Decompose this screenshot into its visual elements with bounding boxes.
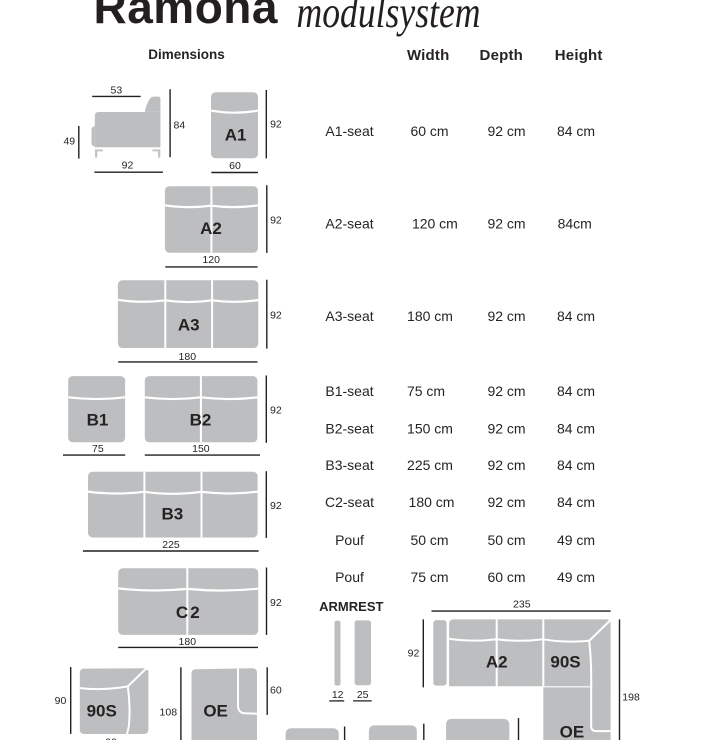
svg-text:120 cm: 120 cm — [412, 216, 458, 232]
svg-text:92 cm: 92 cm — [487, 421, 525, 437]
svg-text:49: 49 — [63, 136, 75, 148]
svg-text:50 cm: 50 cm — [410, 532, 448, 548]
svg-text:50 cm: 50 cm — [487, 532, 525, 548]
svg-text:B3: B3 — [162, 504, 184, 523]
svg-text:180: 180 — [179, 636, 197, 648]
svg-text:49 cm: 49 cm — [557, 569, 595, 585]
svg-text:150: 150 — [192, 443, 210, 455]
svg-text:84 cm: 84 cm — [557, 457, 595, 473]
svg-text:modulsystem: modulsystem — [297, 0, 481, 37]
svg-text:92: 92 — [122, 160, 134, 172]
svg-text:C2-seat: C2-seat — [325, 494, 374, 510]
svg-text:49 cm: 49 cm — [557, 532, 595, 548]
svg-text:180 cm: 180 cm — [409, 494, 455, 510]
svg-text:225 cm: 225 cm — [407, 457, 453, 473]
svg-text:108: 108 — [160, 707, 178, 719]
svg-text:75 cm: 75 cm — [407, 383, 445, 399]
svg-text:84cm: 84cm — [558, 216, 592, 232]
svg-text:60: 60 — [270, 685, 282, 697]
svg-text:90S: 90S — [550, 653, 580, 672]
svg-text:92 cm: 92 cm — [487, 308, 525, 324]
svg-text:B3-seat: B3-seat — [325, 457, 373, 473]
svg-text:92 cm: 92 cm — [487, 457, 525, 473]
svg-text:92: 92 — [270, 119, 282, 131]
svg-text:92: 92 — [270, 214, 282, 226]
svg-text:90S: 90S — [87, 701, 117, 720]
svg-text:90: 90 — [105, 737, 117, 740]
svg-text:235: 235 — [513, 599, 531, 611]
svg-text:92 cm: 92 cm — [487, 494, 525, 510]
svg-text:A3-seat: A3-seat — [325, 308, 373, 324]
svg-text:B1-seat: B1-seat — [325, 383, 373, 399]
svg-text:A2: A2 — [200, 219, 222, 238]
svg-text:84 cm: 84 cm — [557, 421, 595, 437]
svg-text:84 cm: 84 cm — [557, 123, 595, 139]
svg-text:A1: A1 — [225, 125, 247, 144]
svg-text:84: 84 — [174, 120, 186, 132]
svg-text:92 cm: 92 cm — [487, 123, 525, 139]
svg-text:Depth: Depth — [480, 47, 524, 64]
svg-text:150 cm: 150 cm — [407, 421, 453, 437]
svg-text:A1-seat: A1-seat — [325, 123, 373, 139]
svg-text:A2-seat: A2-seat — [325, 216, 373, 232]
svg-text:Dimensions: Dimensions — [148, 47, 225, 62]
svg-text:60: 60 — [229, 160, 241, 172]
svg-text:B2: B2 — [190, 411, 212, 430]
svg-text:Pouf: Pouf — [335, 569, 364, 585]
svg-text:92 cm: 92 cm — [487, 216, 525, 232]
svg-text:A3: A3 — [178, 316, 200, 335]
svg-text:92: 92 — [270, 309, 282, 321]
svg-text:Ramona: Ramona — [94, 0, 278, 33]
svg-text:B1: B1 — [87, 411, 109, 430]
svg-text:198: 198 — [622, 691, 640, 703]
svg-text:225: 225 — [162, 539, 180, 551]
svg-text:60 cm: 60 cm — [410, 123, 448, 139]
svg-text:92: 92 — [270, 597, 282, 609]
svg-text:C2: C2 — [176, 603, 202, 622]
svg-text:75 cm: 75 cm — [410, 569, 448, 585]
svg-text:84 cm: 84 cm — [557, 494, 595, 510]
svg-text:B2-seat: B2-seat — [325, 421, 373, 437]
svg-text:Pouf: Pouf — [335, 532, 364, 548]
svg-text:53: 53 — [111, 85, 123, 97]
svg-text:92: 92 — [408, 648, 420, 660]
svg-text:Height: Height — [555, 47, 603, 64]
svg-text:Width: Width — [407, 47, 450, 64]
svg-text:OE: OE — [560, 723, 585, 740]
svg-text:A2: A2 — [486, 653, 508, 672]
svg-text:92 cm: 92 cm — [487, 383, 525, 399]
svg-text:84 cm: 84 cm — [557, 308, 595, 324]
svg-text:92: 92 — [270, 500, 282, 512]
svg-text:180: 180 — [179, 351, 197, 363]
svg-text:60 cm: 60 cm — [487, 569, 525, 585]
svg-text:75: 75 — [92, 443, 104, 455]
svg-text:180 cm: 180 cm — [407, 308, 453, 324]
svg-text:ARMREST: ARMREST — [319, 599, 383, 614]
svg-text:12: 12 — [332, 689, 344, 701]
svg-text:92: 92 — [270, 404, 282, 416]
svg-text:84 cm: 84 cm — [557, 383, 595, 399]
svg-text:25: 25 — [357, 689, 369, 701]
svg-text:120: 120 — [202, 254, 220, 266]
svg-text:90: 90 — [55, 695, 67, 707]
svg-text:OE: OE — [203, 701, 228, 720]
